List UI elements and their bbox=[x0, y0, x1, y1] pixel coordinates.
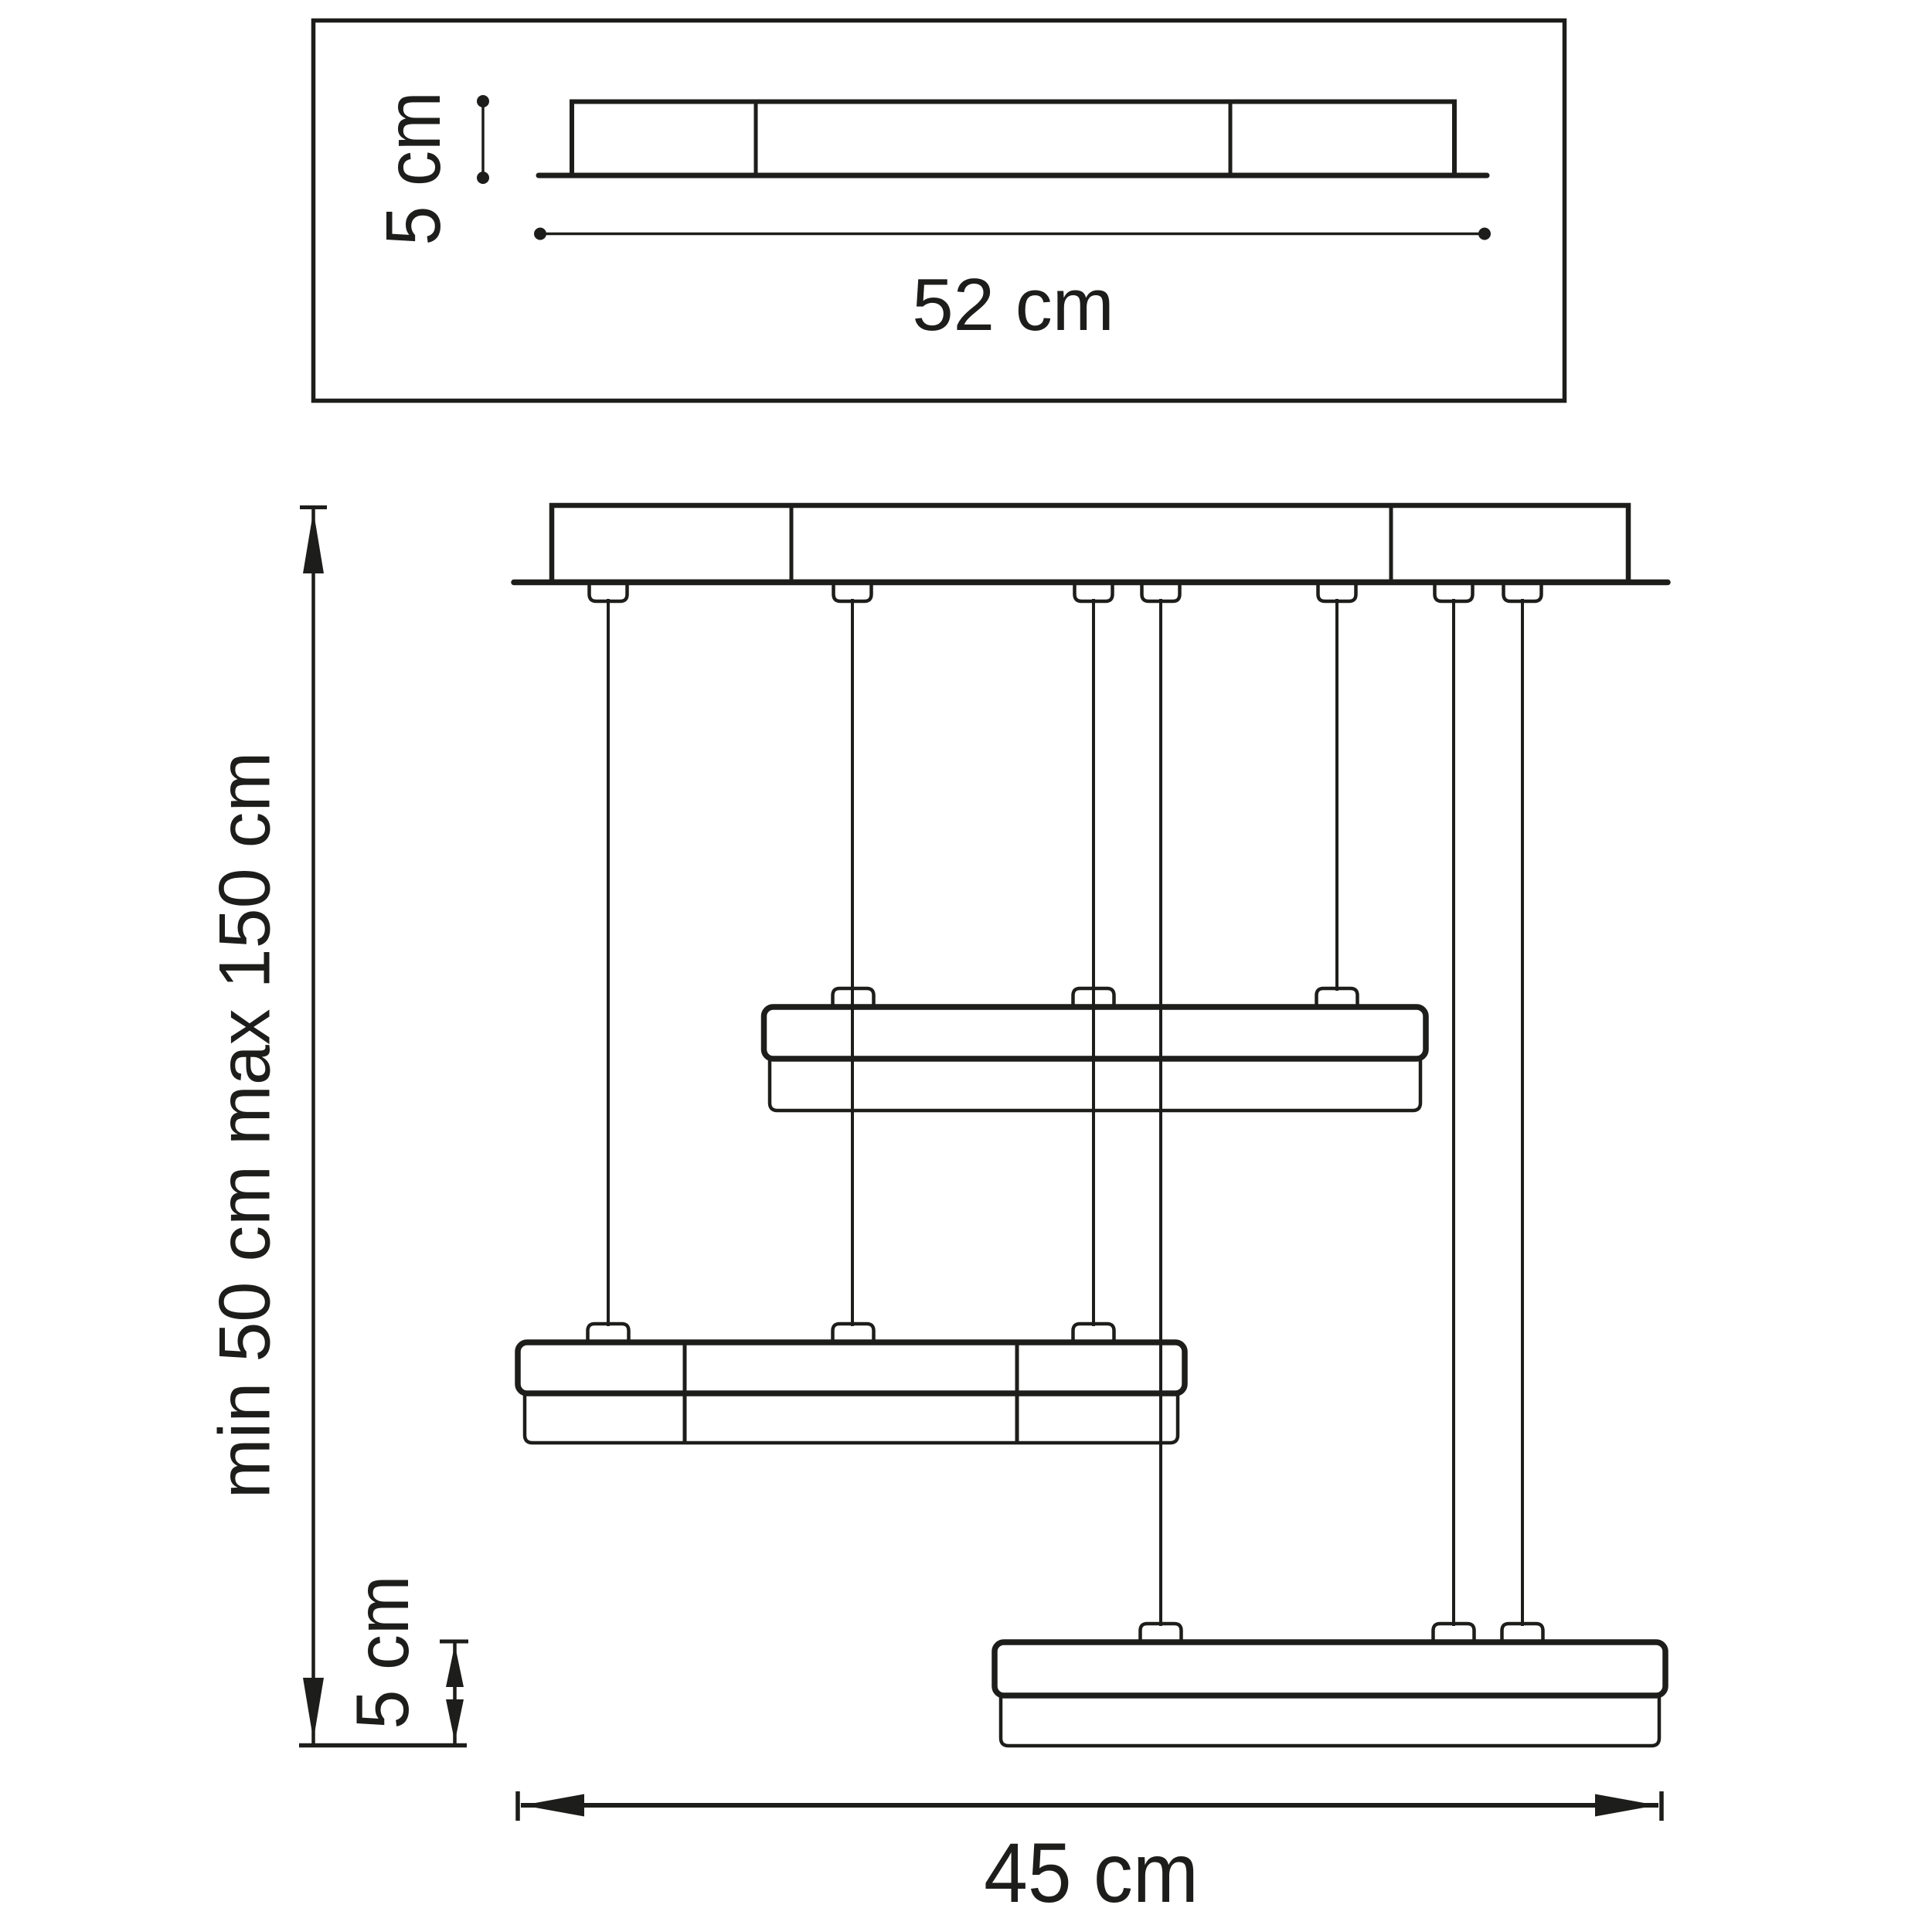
svg-text:5 cm: 5 cm bbox=[341, 1575, 423, 1729]
svg-text:min 50 cm max 150 cm: min 50 cm max 150 cm bbox=[204, 752, 285, 1498]
svg-text:52 cm: 52 cm bbox=[912, 264, 1114, 346]
svg-text:45 cm: 45 cm bbox=[984, 1826, 1199, 1920]
svg-text:5 cm: 5 cm bbox=[370, 91, 457, 245]
